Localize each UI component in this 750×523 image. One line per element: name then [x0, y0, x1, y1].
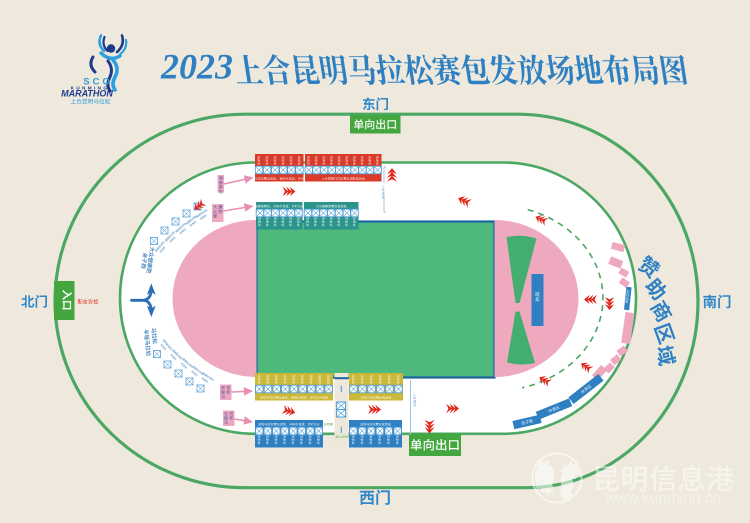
- svg-text:www.kunming.cn: www.kunming.cn: [604, 490, 721, 507]
- svg-text:2023: 2023: [160, 47, 233, 87]
- svg-text:MARATHON: MARATHON: [61, 89, 113, 99]
